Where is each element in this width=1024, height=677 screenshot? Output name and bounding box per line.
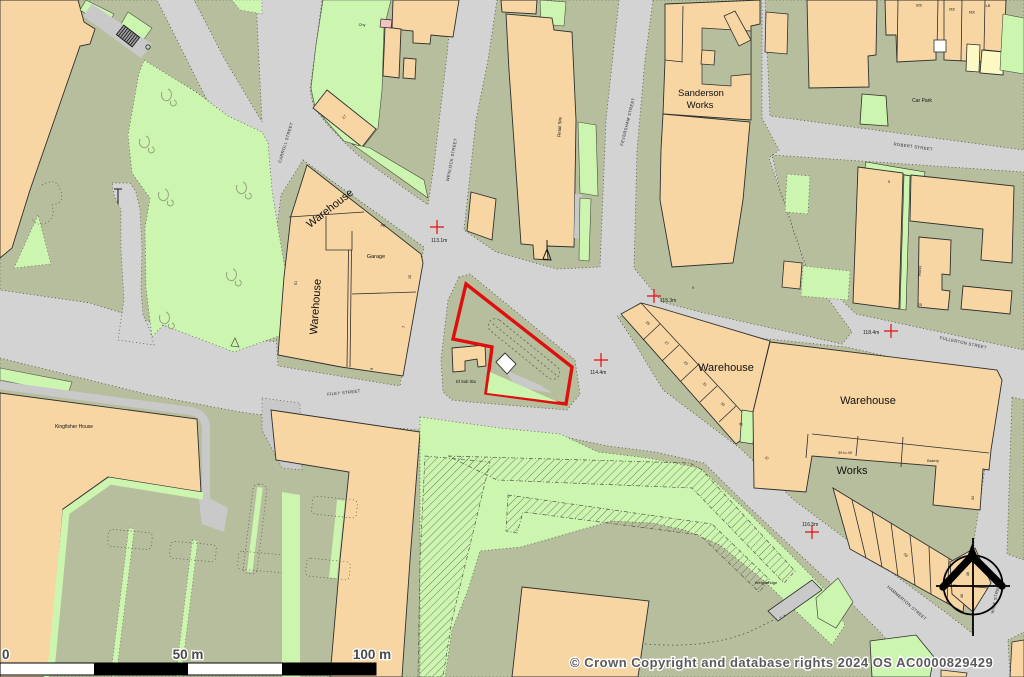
svg-text:115.3m: 115.3m (660, 298, 676, 304)
svg-text:LB: LB (986, 4, 991, 8)
svg-text:9: 9 (370, 368, 374, 370)
svg-text:Bakery: Bakery (927, 459, 939, 463)
svg-text:Works: Works (687, 100, 714, 111)
svg-text:332: 332 (949, 7, 955, 11)
svg-text:Sanderson: Sanderson (678, 88, 724, 99)
svg-text:114.4m: 114.4m (590, 370, 606, 376)
svg-text:Kingfisher House: Kingfisher House (55, 424, 93, 430)
svg-text:34: 34 (971, 496, 975, 500)
svg-text:Works: Works (837, 465, 868, 477)
svg-text:Warehouse: Warehouse (698, 362, 754, 374)
svg-text:320: 320 (916, 3, 922, 7)
svg-text:10: 10 (408, 275, 412, 280)
svg-text:5: 5 (888, 180, 890, 184)
svg-text:Garage: Garage (367, 254, 385, 260)
svg-text:113.1m: 113.1m (431, 238, 447, 244)
svg-text:36: 36 (960, 594, 964, 598)
svg-text:116.5m: 116.5m (802, 522, 818, 528)
svg-text:118.4m: 118.4m (863, 330, 879, 336)
svg-text:100 m: 100 m (353, 647, 391, 662)
svg-text:Chy: Chy (359, 23, 366, 27)
svg-text:PE: PE (380, 224, 386, 228)
svg-text:25: 25 (918, 303, 922, 307)
svg-text:© Crown Copyright and database: © Crown Copyright and database rights 20… (570, 655, 993, 670)
svg-text:Car Park: Car Park (912, 98, 932, 104)
svg-text:38: 38 (966, 572, 970, 576)
svg-text:334: 334 (969, 10, 975, 14)
svg-text:El Sub Sta: El Sub Sta (456, 379, 476, 384)
svg-text:7: 7 (402, 326, 406, 328)
svg-text:9: 9 (692, 286, 694, 290)
svg-text:50 m: 50 m (173, 647, 204, 662)
svg-text:51: 51 (294, 281, 298, 286)
svg-text:Weighbridge: Weighbridge (755, 580, 778, 585)
svg-text:39 to 49: 39 to 49 (838, 451, 852, 455)
svg-text:0: 0 (2, 647, 10, 662)
svg-text:Warehouse: Warehouse (840, 395, 896, 407)
